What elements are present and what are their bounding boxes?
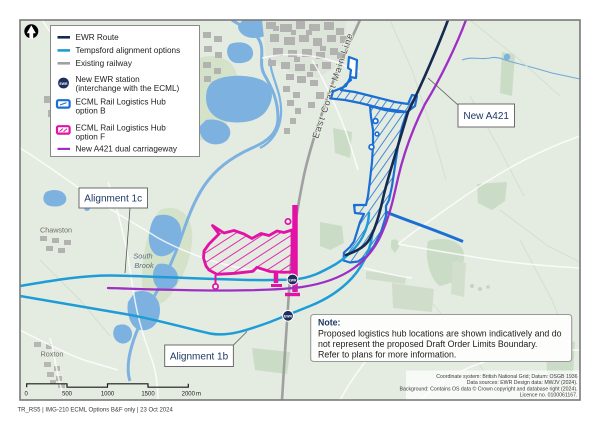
svg-text:Alignment 1b: Alignment 1b [170,352,229,363]
svg-text:Note:: Note: [318,318,341,328]
svg-text:Background: Contains OS data ©: Background: Contains OS data © Crown cop… [400,385,578,392]
svg-text:m: m [196,392,201,398]
svg-text:New EWR station: New EWR station [76,75,141,84]
svg-text:ECML Rail Logistics Hub: ECML Rail Logistics Hub [76,98,167,107]
svg-text:TR_RS5 | IMG-210 ECML Options: TR_RS5 | IMG-210 ECML Options B&F only |… [18,408,174,414]
svg-text:EWR: EWR [284,315,292,319]
svg-text:ECML Rail Logistics Hub: ECML Rail Logistics Hub [76,124,167,133]
svg-text:Refer to plans for more inform: Refer to plans for more information. [318,350,456,360]
svg-text:Proposed logistics hub locatio: Proposed logistics hub locations are sho… [318,329,562,339]
svg-text:option F: option F [76,133,106,142]
svg-text:1000: 1000 [101,392,115,398]
svg-text:Coordinate system: British Nat: Coordinate system: British National Grid… [436,374,577,380]
svg-text:Roxton: Roxton [41,350,64,359]
svg-text:Chawston: Chawston [40,226,72,235]
svg-text:Licence no. 0100061167.: Licence no. 0100061167. [520,393,578,399]
svg-text:Data sources: EWR Design data:: Data sources: EWR Design data: MWJV (202… [467,380,578,386]
svg-text:2000: 2000 [182,392,196,398]
svg-text:New A421: New A421 [463,111,509,122]
svg-text:EWR Route: EWR Route [76,33,120,42]
svg-text:1500: 1500 [141,392,155,398]
svg-text:EWR: EWR [60,82,68,86]
svg-text:not represent the proposed Dra: not represent the proposed Draft Order L… [318,339,537,349]
svg-text:Tempsford alignment options: Tempsford alignment options [76,46,181,55]
svg-text:Alignment 1c: Alignment 1c [84,194,142,205]
svg-text:South: South [133,252,152,261]
svg-text:EWR: EWR [289,278,297,282]
svg-text:(interchange with the ECML): (interchange with the ECML) [76,84,180,93]
svg-text:Existing railway: Existing railway [76,59,133,68]
svg-text:New A421 dual carriageway: New A421 dual carriageway [76,145,178,154]
svg-text:500: 500 [62,392,73,398]
svg-text:Brook: Brook [134,261,154,270]
svg-text:option B: option B [76,107,107,116]
